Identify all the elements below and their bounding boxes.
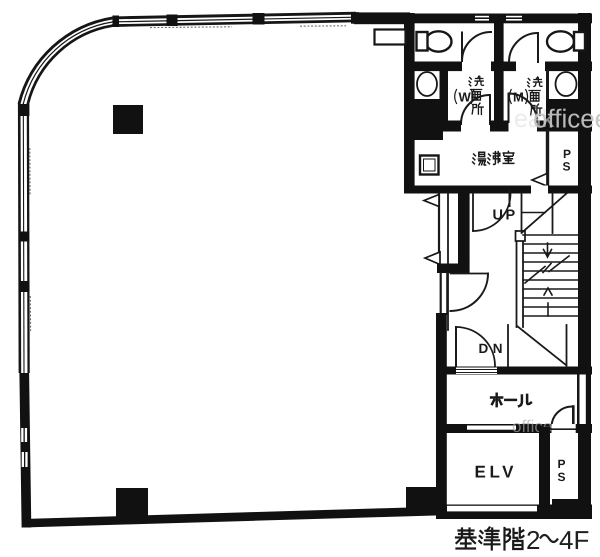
svg-text:4F: 4F bbox=[559, 525, 589, 555]
svg-text:W: W bbox=[459, 90, 472, 105]
svg-text:UP: UP bbox=[493, 208, 518, 224]
svg-text:P: P bbox=[558, 457, 566, 471]
svg-text:officee: officee bbox=[533, 104, 600, 134]
svg-text:S: S bbox=[563, 160, 571, 174]
svg-text:DN: DN bbox=[479, 341, 508, 356]
svg-text:2: 2 bbox=[526, 525, 540, 555]
svg-text:S: S bbox=[558, 470, 566, 484]
svg-text:ELV: ELV bbox=[475, 463, 518, 482]
svg-text:M: M bbox=[513, 90, 524, 105]
